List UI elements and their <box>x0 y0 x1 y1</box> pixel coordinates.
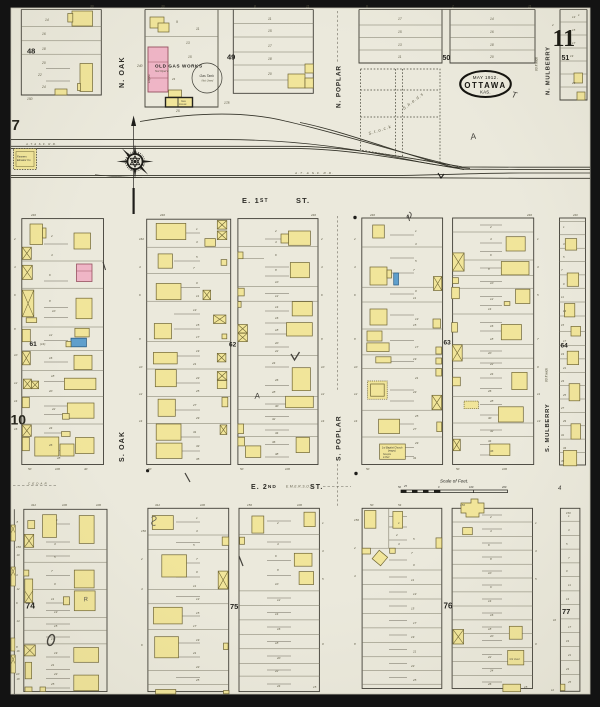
svg-text:30: 30 <box>161 5 165 9</box>
svg-text:6: 6 <box>366 5 368 9</box>
svg-text:11: 11 <box>528 5 532 9</box>
svg-text:8: 8 <box>254 5 256 9</box>
svg-text:30: 30 <box>90 5 94 9</box>
svg-text:2: 2 <box>451 5 454 9</box>
svg-text:11: 11 <box>306 5 310 9</box>
